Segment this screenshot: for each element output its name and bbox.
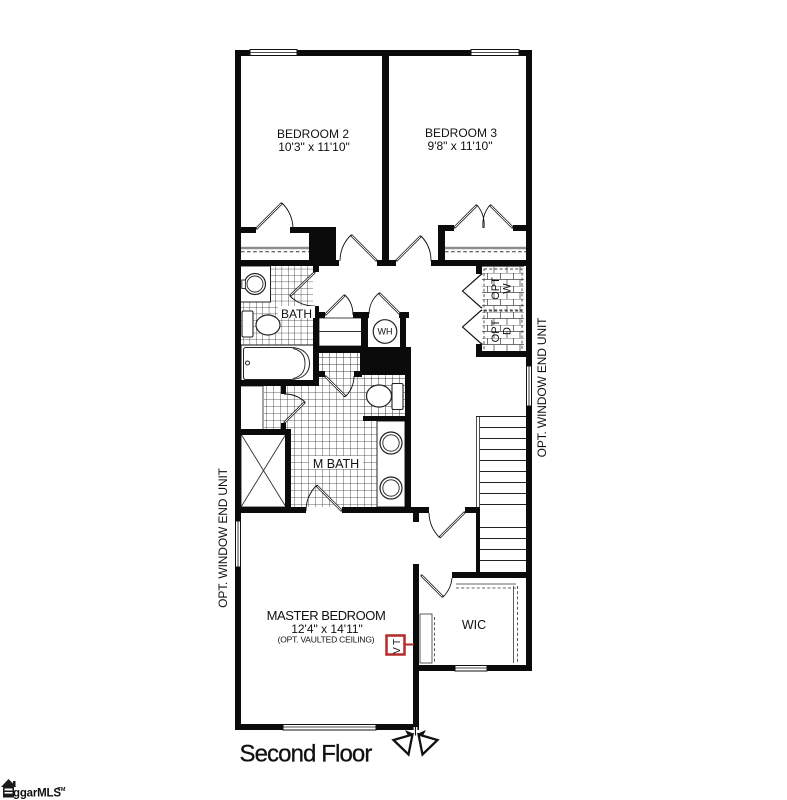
svg-text:TM: TM [58,787,66,793]
svg-text:10'3" x 11'10": 10'3" x 11'10" [278,140,350,154]
svg-text:OPT: OPT [490,277,502,300]
svg-text:Second Floor: Second Floor [240,741,373,768]
svg-text:9'8" x 11'10": 9'8" x 11'10" [428,139,493,153]
svg-text:W: W [502,283,514,294]
svg-text:WH: WH [378,327,393,337]
svg-text:OPT: OPT [490,319,502,342]
svg-text:BEDROOM 2: BEDROOM 2 [277,127,349,141]
svg-text:WIC: WIC [462,618,486,632]
svg-text:BEDROOM 3: BEDROOM 3 [425,126,497,140]
svg-text:V: V [392,647,403,654]
svg-text:OPT. WINDOW END UNIT: OPT. WINDOW END UNIT [216,467,230,607]
svg-text:D: D [502,327,514,335]
svg-text:BATH: BATH [281,307,312,321]
svg-text:T: T [392,639,403,645]
svg-text:M BATH: M BATH [313,457,359,471]
svg-text:MASTER BEDROOM: MASTER BEDROOM [267,608,386,623]
svg-text:(OPT. VAULTED CEILING): (OPT. VAULTED CEILING) [278,635,375,645]
svg-text:ggarMLS: ggarMLS [13,788,61,800]
svg-text:OPT. WINDOW END UNIT: OPT. WINDOW END UNIT [535,317,549,457]
